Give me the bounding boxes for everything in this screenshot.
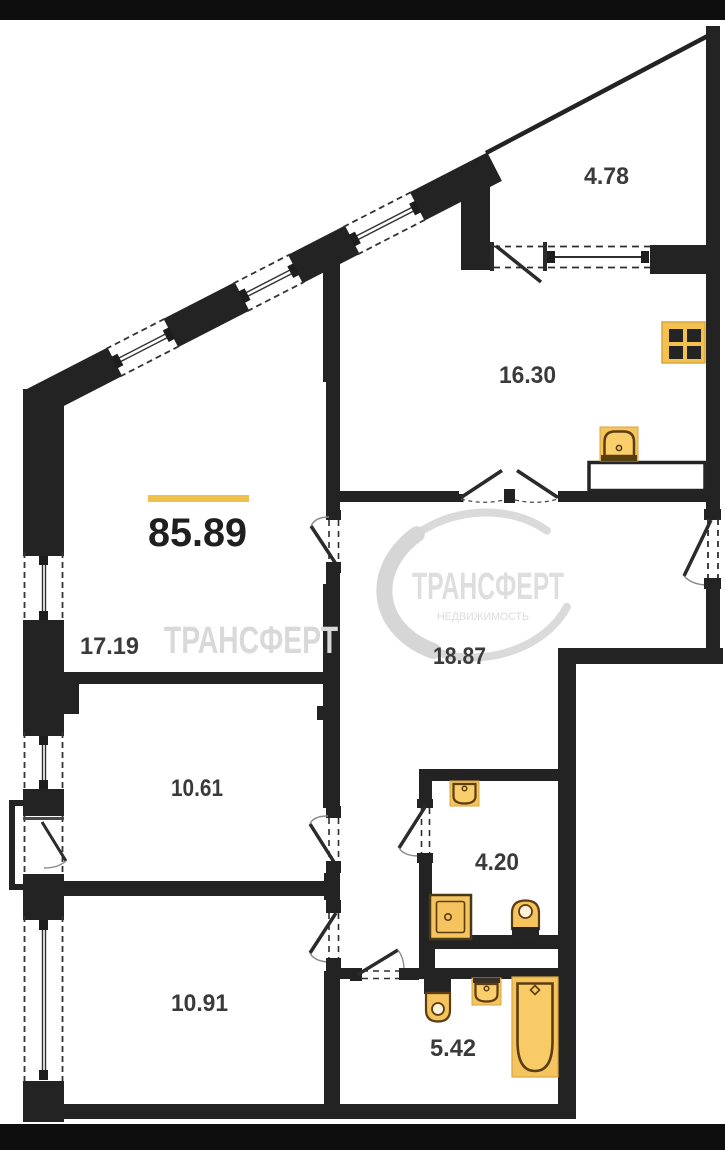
- svg-text:НЕДВИЖИМОСТЬ: НЕДВИЖИМОСТЬ: [437, 611, 529, 623]
- svg-text:85.89: 85.89: [148, 511, 247, 555]
- svg-text:10.91: 10.91: [171, 990, 228, 1017]
- svg-text:10.61: 10.61: [171, 775, 223, 802]
- svg-text:16.30: 16.30: [499, 362, 556, 389]
- svg-text:17.19: 17.19: [80, 633, 139, 660]
- svg-text:ТРАНСФЕРТ: ТРАНСФЕРТ: [164, 620, 338, 662]
- svg-text:4.20: 4.20: [475, 849, 519, 876]
- svg-text:5.42: 5.42: [430, 1035, 476, 1062]
- svg-text:4.78: 4.78: [584, 163, 629, 190]
- svg-text:18.87: 18.87: [433, 643, 486, 670]
- svg-text:ТРАНСФЕРТ: ТРАНСФЕРТ: [412, 566, 564, 608]
